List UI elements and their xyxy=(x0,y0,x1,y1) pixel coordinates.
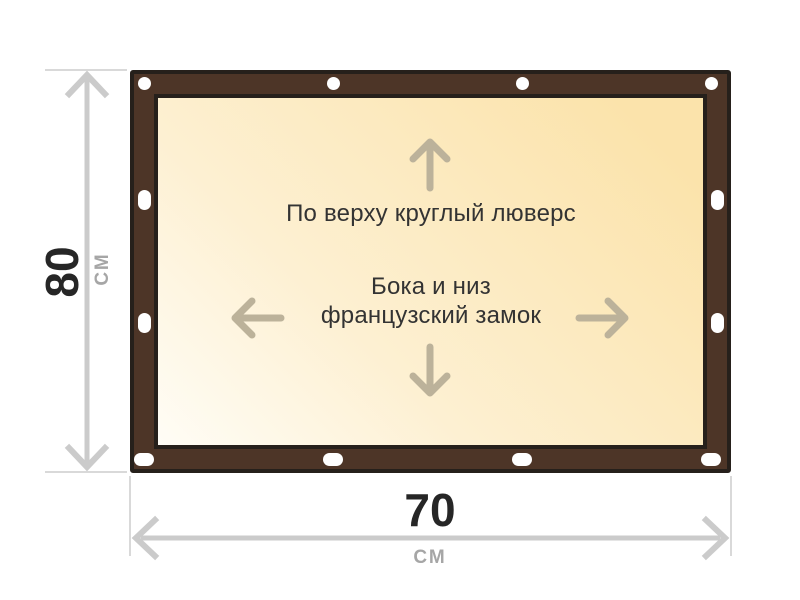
horizontal-slot-grommet-icon xyxy=(134,453,154,466)
sides-bottom-lock-label: Бока и низ французский замок xyxy=(158,272,704,330)
vertical-slot-grommet-icon xyxy=(711,190,724,210)
arrowhead-up xyxy=(69,75,105,94)
height-unit: см xyxy=(92,229,114,309)
tarp-size-diagram: По верху круглый люверс Бока и низ франц… xyxy=(0,0,800,600)
arrowhead-down xyxy=(69,448,105,467)
horizontal-slot-grommet-icon xyxy=(701,453,721,466)
horizontal-slot-grommet-icon xyxy=(512,453,532,466)
horizontal-slot-grommet-icon xyxy=(323,453,343,466)
width-unit: см xyxy=(330,547,530,569)
vertical-slot-grommet-icon xyxy=(138,313,151,333)
sides-bottom-lock-label-line2: французский замок xyxy=(158,301,704,330)
sides-bottom-lock-label-line1: Бока и низ xyxy=(158,272,704,301)
arrowhead-left xyxy=(136,520,155,556)
top-grommet-label: По верху круглый люверс xyxy=(158,200,704,228)
arrowhead-right xyxy=(706,520,725,556)
round-grommet-icon xyxy=(138,77,151,90)
round-grommet-icon xyxy=(705,77,718,90)
round-grommet-icon xyxy=(516,77,529,90)
vertical-slot-grommet-icon xyxy=(138,190,151,210)
height-value: 80 xyxy=(37,212,87,332)
vertical-slot-grommet-icon xyxy=(711,313,724,333)
width-value: 70 xyxy=(330,485,530,535)
round-grommet-icon xyxy=(327,77,340,90)
